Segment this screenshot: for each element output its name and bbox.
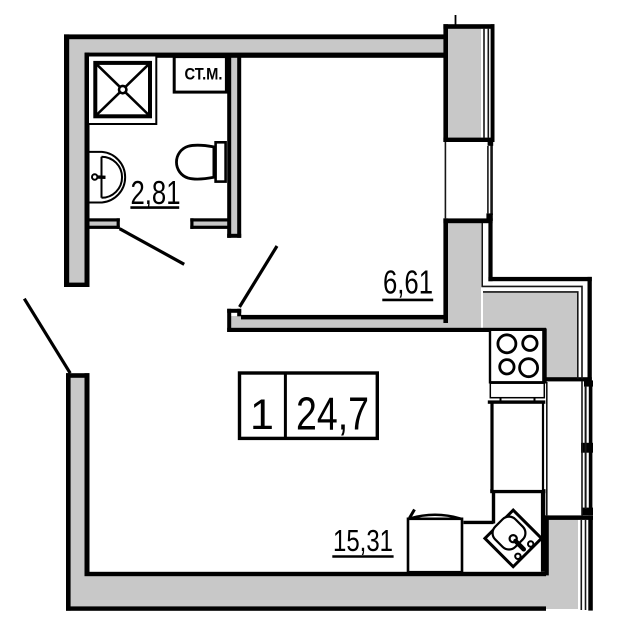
svg-text:6,61: 6,61 [383,264,433,301]
svg-text:15,31: 15,31 [333,523,393,558]
svg-text:СТ.М.: СТ.М. [185,65,223,84]
svg-text:1: 1 [250,391,274,439]
svg-text:24,7: 24,7 [296,388,369,440]
svg-text:2,81: 2,81 [131,174,181,211]
